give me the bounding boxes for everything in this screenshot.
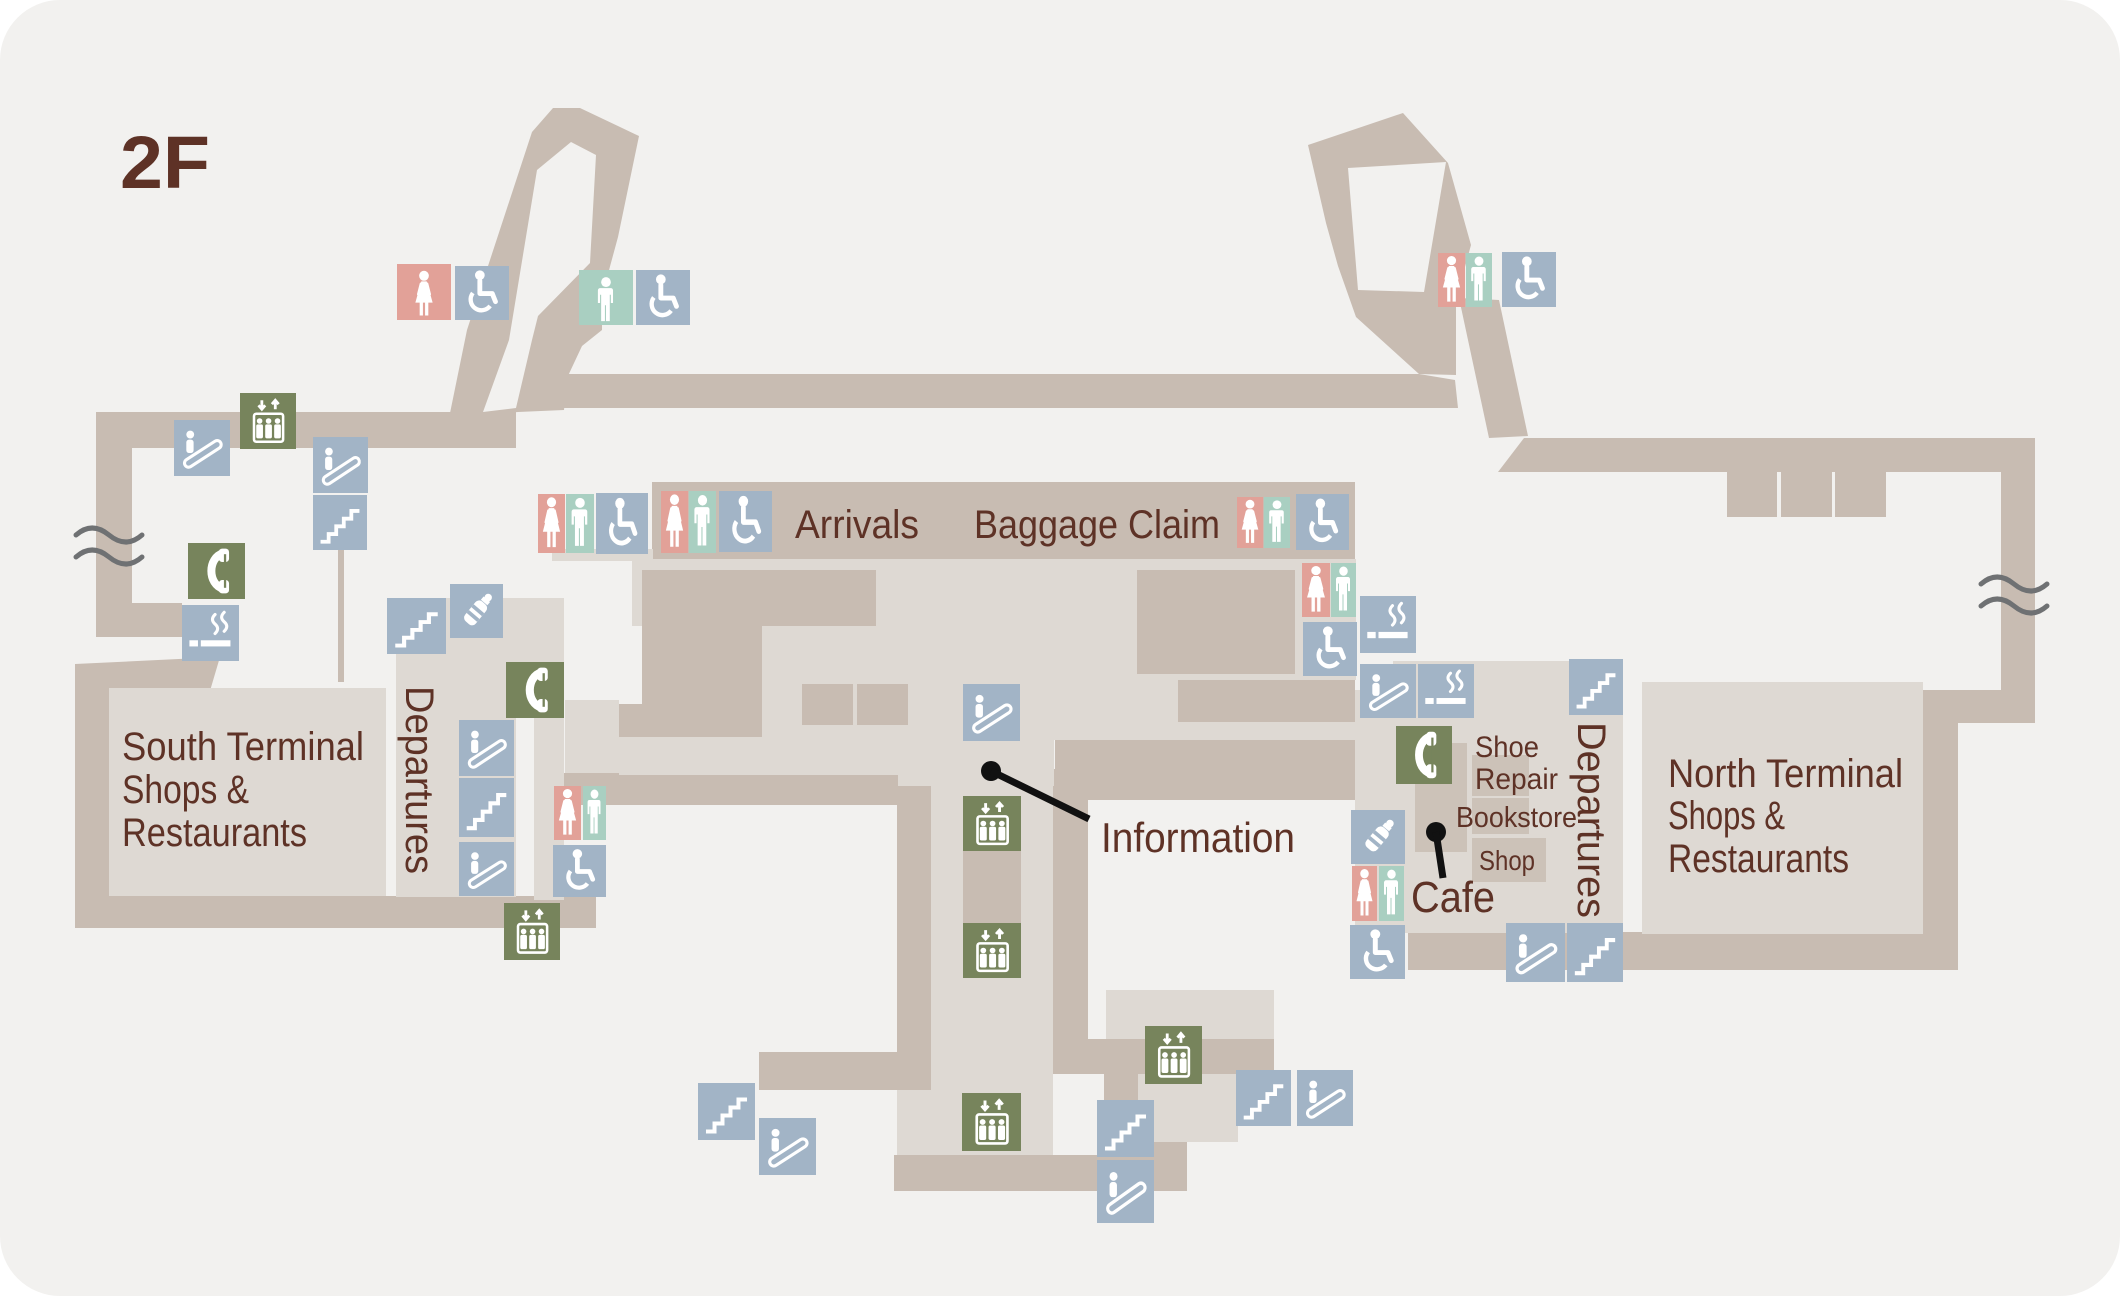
- svg-text:Restaurants: Restaurants: [122, 811, 307, 855]
- svg-text:Information: Information: [1101, 814, 1295, 861]
- svg-text:Shops &: Shops &: [122, 768, 249, 812]
- svg-text:Shops &: Shops &: [1668, 794, 1785, 838]
- svg-text:Shop: Shop: [1479, 845, 1535, 876]
- svg-text:Cafe: Cafe: [1411, 873, 1495, 922]
- svg-text:Shoe: Shoe: [1475, 731, 1539, 764]
- svg-text:2F: 2F: [120, 121, 210, 204]
- svg-text:Restaurants: Restaurants: [1668, 837, 1849, 881]
- svg-text:Repair: Repair: [1475, 763, 1558, 796]
- svg-text:Arrivals: Arrivals: [795, 503, 919, 547]
- svg-text:North Terminal: North Terminal: [1668, 752, 1903, 796]
- svg-text:Baggage Claim: Baggage Claim: [974, 503, 1220, 547]
- svg-text:Departures: Departures: [397, 686, 441, 874]
- svg-text:Bookstore: Bookstore: [1456, 802, 1577, 834]
- svg-text:South Terminal: South Terminal: [122, 725, 364, 769]
